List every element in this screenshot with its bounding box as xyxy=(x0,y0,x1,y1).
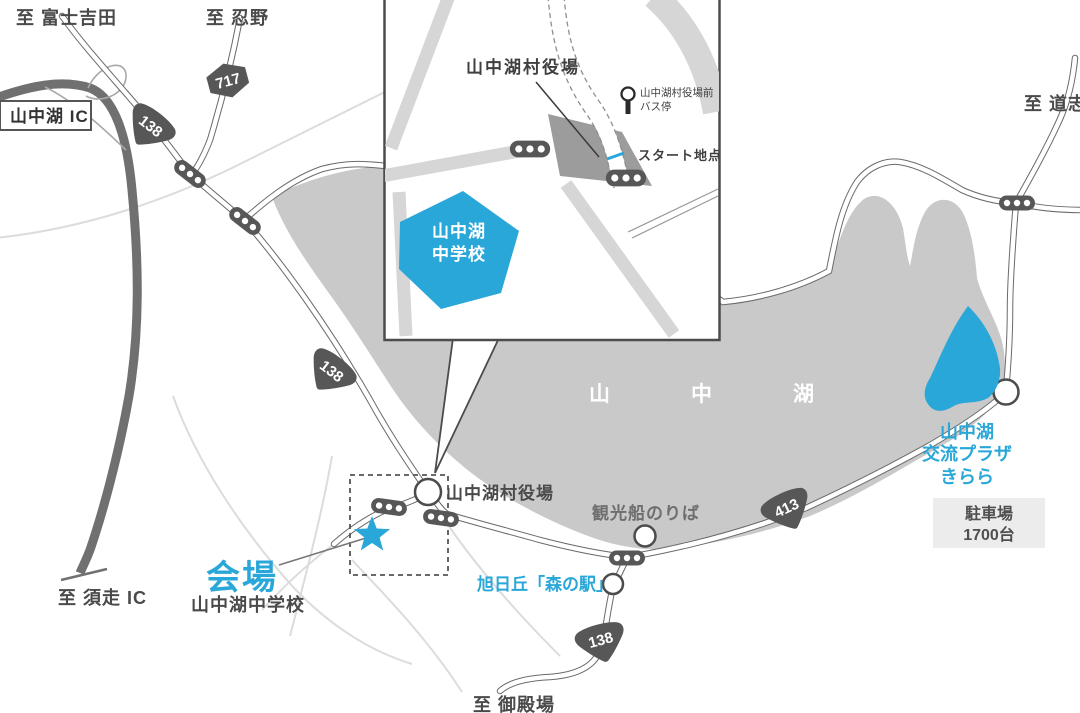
boat-dock-label: 観光船のりば xyxy=(592,503,700,523)
lake-name-label: 山 中 湖 xyxy=(589,383,844,406)
traffic-signal-icon xyxy=(999,196,1035,211)
dest-gotemba-label: 至 御殿場 xyxy=(473,694,555,713)
bus-stop-label: バス停 xyxy=(640,100,672,113)
inset-map: 山中湖 中学校 山中湖村役場 山中湖村役場前 バス停 スタート地点 xyxy=(382,0,722,340)
dest-fujiyoshida-label: 至 富士吉田 xyxy=(16,7,117,28)
dest-subashiri-label: 至 須走 IC xyxy=(58,588,147,608)
interchange-label-box: 山中湖 IC xyxy=(0,101,91,130)
inset-school-label: 山中湖 xyxy=(432,221,486,241)
map-canvas: 山 中 湖 717 138 138 413 138 山中湖 IC 至 富士吉田 … xyxy=(0,0,1080,713)
expressway xyxy=(0,65,137,580)
route-badge-717: 717 xyxy=(204,58,252,102)
parking-label: 駐車場 xyxy=(965,504,1013,523)
village-office-label: 山中湖村役場 xyxy=(446,483,554,503)
dest-doshi-label: 至 道志 xyxy=(1024,93,1080,114)
start-point-label: スタート地点 xyxy=(638,148,722,163)
boat-dock-marker xyxy=(635,526,656,547)
parking-box: 駐車場 1700台 xyxy=(933,498,1045,548)
venue-school-label: 山中湖中学校 xyxy=(191,594,305,615)
kirara-label: きらら xyxy=(940,467,994,487)
inset-school-label: 中学校 xyxy=(432,244,486,264)
bus-stop-label: 山中湖村役場前 xyxy=(640,86,714,99)
mori-no-eki-label: 旭日丘「森の駅」 xyxy=(476,574,613,594)
kirara-label: 山中湖 xyxy=(940,421,994,442)
kirara-label: 交流プラザ xyxy=(922,443,1012,464)
dest-oshino-label: 至 忍野 xyxy=(206,8,269,28)
route-badge-138: 138 xyxy=(573,618,631,668)
traffic-signal-icon xyxy=(609,551,645,566)
traffic-signal-icon xyxy=(422,508,460,528)
parking-capacity: 1700台 xyxy=(963,525,1015,544)
traffic-signal-icon xyxy=(510,141,550,158)
traffic-signal-icon xyxy=(606,170,646,187)
venue-label: 会場 xyxy=(206,559,278,597)
interchange-label: 山中湖 IC xyxy=(10,106,89,126)
village-office-marker xyxy=(415,479,441,505)
route-map: 山 中 湖 717 138 138 413 138 山中湖 IC 至 富士吉田 … xyxy=(0,0,1080,713)
inset-office-label: 山中湖村役場 xyxy=(466,57,580,77)
route-badge-138: 138 xyxy=(298,343,361,404)
